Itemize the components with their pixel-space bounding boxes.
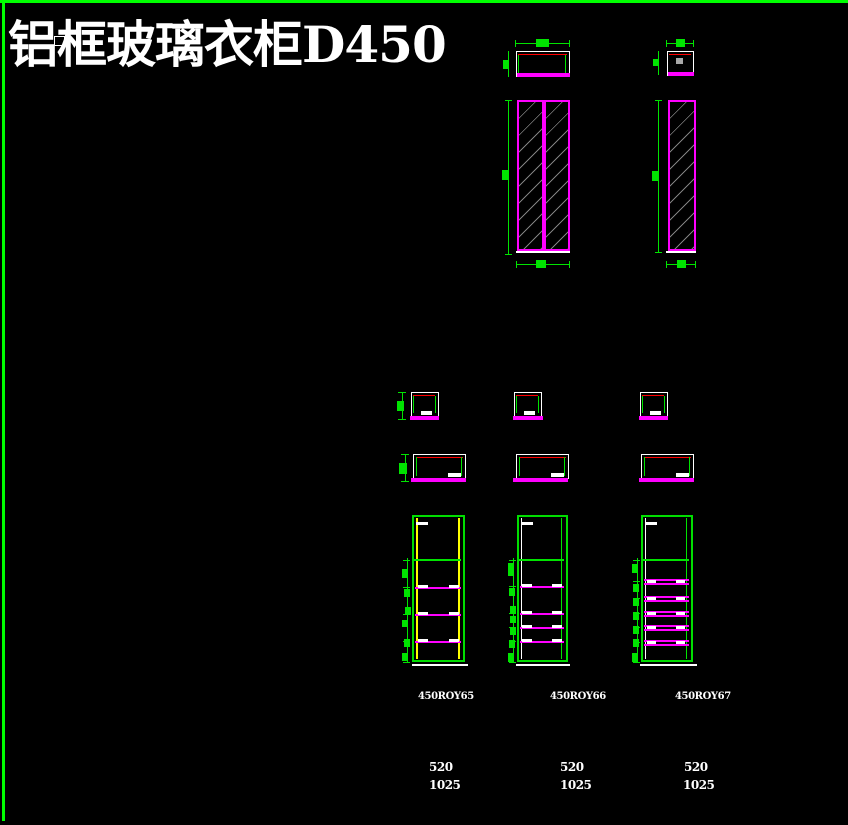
viewport-top-border [0, 0, 848, 3]
shelf-support [522, 639, 532, 642]
fixed-shelf-line [414, 559, 461, 561]
shelf-support [647, 612, 656, 615]
back-edge-line [669, 54, 691, 55]
side-edge-line [519, 457, 520, 476]
shelf-support [522, 625, 532, 628]
glass-door-panel [517, 100, 544, 251]
side-profile [521, 518, 522, 659]
shelf-line [644, 644, 689, 646]
dim-tick [403, 662, 410, 663]
front-door-bar [639, 416, 668, 420]
side-profile [561, 518, 562, 659]
shelf-support [676, 641, 685, 644]
back-edge-line [516, 395, 538, 396]
shelf-support [647, 626, 656, 629]
dim-text-block [404, 589, 410, 597]
shelf-support [449, 612, 459, 615]
dim-tick [633, 581, 640, 582]
height-label-2: 1025 [560, 778, 591, 792]
width-label-3: 520 [684, 760, 708, 774]
dim-tick [509, 662, 516, 663]
shelf-support [647, 597, 656, 600]
dim-text-block [402, 569, 408, 578]
front-door-bar [668, 72, 694, 76]
glass-door-panel [668, 100, 696, 251]
side-edge-line [689, 457, 690, 476]
drawer-front-block [421, 411, 432, 415]
hanging-rail-block [416, 522, 428, 525]
side-edge-line [435, 396, 436, 413]
dim-text-block [510, 606, 516, 613]
dim-text-block [508, 563, 514, 576]
front-door-bar [410, 416, 439, 420]
dim-tick [398, 419, 406, 420]
dim-text-block [402, 653, 408, 661]
hanging-rail-block [645, 522, 657, 525]
product-code-3: 450ROY67 [675, 691, 731, 702]
side-edge-line [664, 396, 665, 413]
product-code-1: 450ROY65 [418, 691, 474, 702]
dim-tick [633, 560, 640, 561]
dim-tick [403, 587, 410, 588]
shelf-support [647, 580, 656, 583]
dim-text-block [633, 626, 639, 634]
dim-tick [569, 40, 570, 47]
back-edge-line [519, 457, 566, 458]
dim-tick [509, 560, 516, 561]
product-code-2: 450ROY66 [550, 691, 606, 702]
base-line [516, 664, 570, 666]
side-profile [686, 518, 687, 659]
shelf-support [449, 585, 459, 588]
back-edge-line [518, 54, 567, 55]
base-line [412, 664, 468, 666]
drawer-front-block [676, 473, 689, 477]
shelf-support [676, 580, 685, 583]
cad-canvas[interactable]: 铝框玻璃衣柜D450 [0, 0, 848, 825]
shelf-support [552, 639, 562, 642]
dim-tick [515, 40, 516, 47]
shelf-support [418, 639, 428, 642]
dim-tick [666, 40, 667, 47]
shelf-support [522, 584, 532, 587]
back-edge-line [644, 457, 691, 458]
viewport-left-border [2, 0, 5, 821]
shelf-support [676, 626, 685, 629]
dim-text-block [633, 639, 639, 647]
side-edge-line [461, 457, 462, 476]
dim-tick [569, 261, 570, 268]
side-edge-line [564, 457, 565, 476]
dim-tick [695, 261, 696, 268]
front-door-bar [639, 478, 694, 482]
hanging-rail-block [521, 522, 533, 525]
back-edge-line [413, 395, 435, 396]
dim-tick [505, 100, 512, 101]
side-edge-line [642, 396, 643, 413]
front-door-bar [411, 478, 466, 482]
shelf-support [449, 639, 459, 642]
drawer-front-block [448, 473, 461, 477]
dim-tick [516, 261, 517, 268]
back-edge-line [416, 457, 463, 458]
dim-text-block [509, 588, 515, 596]
dim-text-block [404, 639, 410, 647]
drawer-front-block [524, 411, 535, 415]
fixed-shelf-line [643, 559, 689, 561]
shelf-support [552, 625, 562, 628]
dim-text-block [509, 640, 515, 648]
height-label-1: 1025 [429, 778, 460, 792]
base-line [640, 664, 697, 666]
dim-tick [666, 261, 667, 268]
dim-tick [655, 100, 662, 101]
base-line [516, 251, 570, 253]
side-edge-line [538, 396, 539, 413]
dim-text-block [402, 620, 408, 627]
dim-text-block [632, 653, 638, 662]
shelf-line [644, 615, 689, 617]
dim-tick [505, 254, 512, 255]
dim-tick [655, 252, 662, 253]
dim-line [637, 558, 638, 663]
dim-text-block [653, 59, 659, 66]
shelf-support [522, 611, 532, 614]
glass-door-panel [544, 100, 570, 251]
fixed-shelf-line [519, 559, 564, 561]
dim-text-block [652, 171, 659, 181]
side-profile [645, 518, 646, 659]
dim-text-block [399, 463, 407, 474]
side-edge-line [518, 55, 519, 73]
front-door-bar [517, 73, 570, 77]
dim-text-block [502, 170, 509, 180]
shelf-support [676, 612, 685, 615]
handle-block [676, 58, 683, 64]
shelf-support [418, 585, 428, 588]
shelf-line [644, 629, 689, 631]
front-door-bar [513, 416, 543, 420]
dim-tick [398, 392, 406, 393]
drawer-front-block [551, 473, 564, 477]
dim-text-block [508, 653, 514, 662]
shelf-support [676, 597, 685, 600]
dim-text-block [536, 39, 549, 47]
width-label-1: 520 [429, 760, 453, 774]
shelf-support [647, 641, 656, 644]
base-line [666, 251, 696, 253]
dim-text-block [676, 39, 685, 47]
side-edge-line [416, 457, 417, 476]
dim-text-block [633, 598, 639, 606]
dim-text-block [633, 612, 639, 620]
side-edge-line [565, 55, 566, 73]
back-edge-line [642, 395, 664, 396]
crosshair-pickbox [54, 36, 65, 46]
drawing-title: 铝框玻璃衣柜D450 [8, 18, 446, 72]
dim-text-block [633, 584, 639, 592]
side-edge-line [516, 396, 517, 413]
dim-tick [401, 481, 409, 482]
dim-tick [509, 586, 516, 587]
side-edge-line [413, 396, 414, 413]
dim-text-block [510, 616, 516, 623]
drawer-front-block [650, 411, 661, 415]
dim-tick [633, 662, 640, 663]
dim-tick [401, 454, 409, 455]
shelf-line [644, 583, 689, 585]
shelf-support [418, 612, 428, 615]
dim-tick [403, 560, 410, 561]
height-label-3: 1025 [683, 778, 714, 792]
dim-text-block [677, 260, 686, 268]
shelf-line [644, 600, 689, 602]
shelf-support [552, 611, 562, 614]
dim-tick [693, 40, 694, 47]
width-label-2: 520 [560, 760, 584, 774]
dim-text-block [405, 607, 411, 615]
dim-text-block [503, 60, 509, 69]
dim-text-block [510, 628, 516, 635]
dim-text-block [397, 401, 404, 411]
dim-text-block [536, 260, 546, 268]
front-door-bar [513, 478, 568, 482]
dim-tick [509, 613, 516, 614]
side-edge-line [644, 457, 645, 476]
shelf-support [552, 584, 562, 587]
dim-text-block [632, 564, 638, 573]
